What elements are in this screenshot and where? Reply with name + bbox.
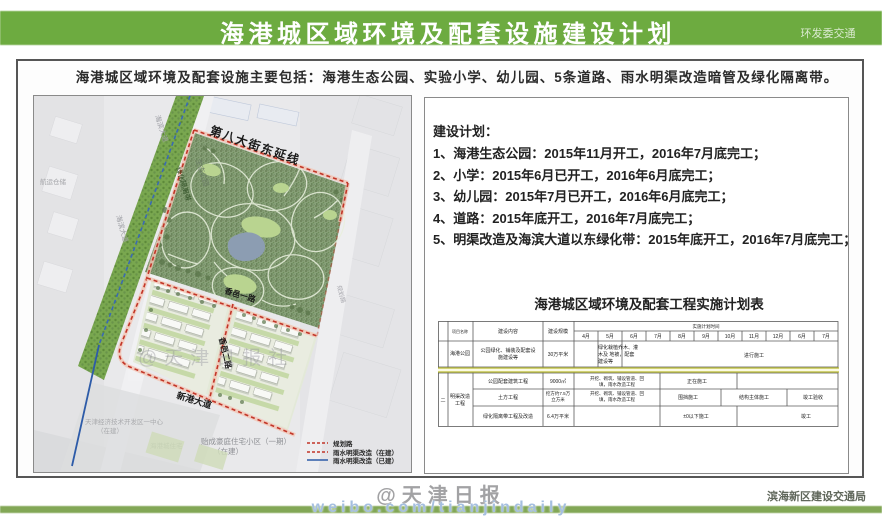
svg-text:二: 二 [440,398,445,404]
svg-text:规划路: 规划路 [333,439,353,448]
svg-text:正在施工: 正在施工 [687,378,707,385]
svg-text:9000㎡: 9000㎡ [550,378,566,385]
svg-text:（在建）: （在建） [97,426,123,435]
svg-text:6月: 6月 [630,334,638,340]
svg-text:竣工验收: 竣工验收 [803,394,823,401]
svg-text:贻成豪庭住宅小区（一期）: 贻成豪庭住宅小区（一期） [201,436,291,446]
svg-text:7月: 7月 [654,334,662,340]
svg-text:绿化栽植乔木、灌: 绿化栽植乔木、灌 [598,344,638,351]
svg-text:公园配套建筑工程: 公园配套建筑工程 [488,378,528,385]
svg-text:绿化隔离带工程及改造: 绿化隔离带工程及改造 [483,413,533,420]
svg-text:建设内容: 建设内容 [498,328,518,335]
svg-text:11月: 11月 [749,334,759,340]
svg-text:填，雨水改造工程: 填，雨水改造工程 [599,381,635,388]
svg-text:10月: 10月 [725,334,736,340]
svg-text:4月: 4月 [582,334,590,340]
svg-text:项目名称: 项目名称 [452,328,468,334]
svg-text:挖方约7.5万: 挖方约7.5万 [546,390,571,397]
svg-text:雨水明渠改造（已建）: 雨水明渠改造（已建） [333,456,398,465]
svg-text:8月: 8月 [678,334,686,340]
svg-text:填，雨水改造工程: 填，雨水改造工程 [599,396,635,403]
svg-text:航运仓储: 航运仓储 [40,177,67,186]
svg-text:12月: 12月 [773,334,784,340]
svg-text:工程: 工程 [455,400,465,407]
svg-text:±0以下施工: ±0以下施工 [683,413,709,420]
svg-text:5月: 5月 [606,334,614,340]
svg-text:实施计划时间: 实施计划时间 [693,323,720,330]
svg-text:进行施工: 进行施工 [744,352,764,359]
svg-text:9月: 9月 [702,334,710,340]
svg-text:立方米: 立方米 [551,396,565,403]
svg-text:海港公园: 海港公园 [450,350,470,357]
svg-text:30万平米: 30万平米 [548,351,569,358]
svg-text:开挖、砌筑、铺设管道、回: 开挖、砌筑、铺设管道、回 [590,375,644,382]
svg-text:竣工: 竣工 [801,413,811,420]
svg-text:6.4万平米: 6.4万平米 [547,413,569,420]
svg-text:围挡施工: 围挡施工 [678,394,698,401]
svg-text:开挖、砌筑、铺设管道、回: 开挖、砌筑、铺设管道、回 [590,390,644,397]
svg-text:结构主体施工: 结构主体施工 [739,394,769,401]
svg-text:公园绿化、铺装及配套设: 公园绿化、铺装及配套设 [480,347,535,354]
svg-text:天津经济技术开发区一中心: 天津经济技术开发区一中心 [85,417,164,426]
svg-text:6月: 6月 [798,334,806,340]
svg-text:明渠改造: 明渠改造 [450,393,470,400]
svg-text:施建设等: 施建设等 [498,354,518,361]
svg-text:建设规模: 建设规模 [548,328,568,335]
svg-text:雨水明渠改造（在建）: 雨水明渠改造（在建） [333,448,398,457]
svg-text:建设等: 建设等 [598,358,613,365]
svg-text:7月: 7月 [822,334,830,340]
svg-text:木及 地被，配套: 木及 地被，配套 [598,351,634,358]
svg-text:@天津日报社: @天津日报社 [138,347,294,369]
svg-text:土方工程: 土方工程 [498,394,518,401]
